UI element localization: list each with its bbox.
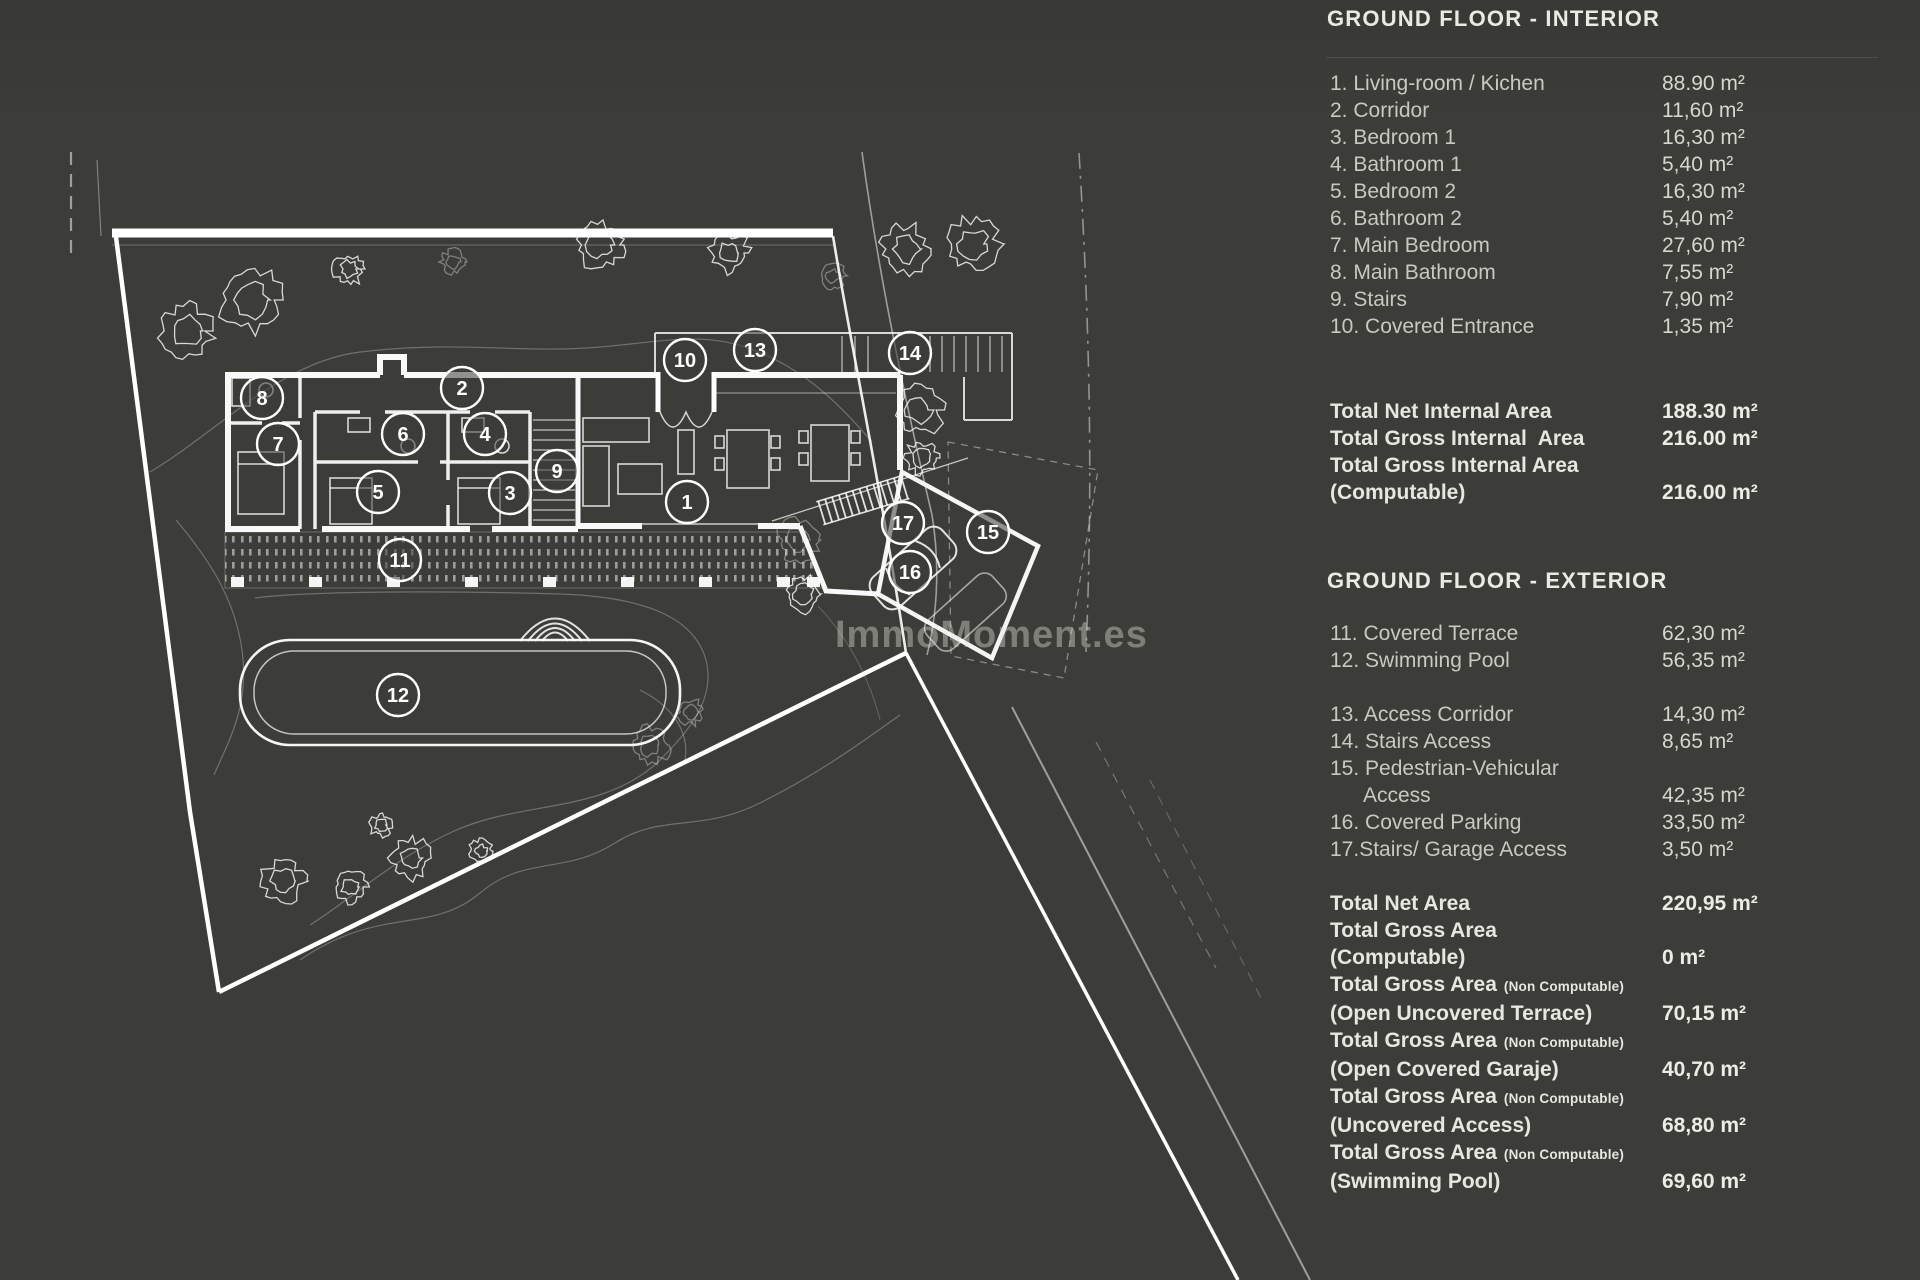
row-label: 6. Bathroom 2 [1330, 207, 1462, 230]
interior-items-list: 1. Living-room / Kichen88.90 m² 2. Corri… [1330, 70, 1916, 340]
row-label: Total Gross Area [1330, 919, 1497, 942]
row-label: Total Net Area [1330, 892, 1470, 915]
legend-row: 12. Swimming Pool56,35 m² [1330, 647, 1916, 674]
row-label-suffix: (Non Computable) [1497, 1147, 1624, 1162]
row-label: Total Gross Internal Area [1330, 427, 1584, 450]
legend-row: 8. Main Bathroom7,55 m² [1330, 259, 1916, 286]
furniture [232, 378, 860, 524]
legend-total-row: Total Gross Area(Non Computable) [1330, 971, 1916, 1000]
tree-icon [446, 256, 461, 270]
legend-total-row: Total Net Internal Area188.30 m² [1330, 398, 1916, 425]
row-value [1662, 1139, 1916, 1168]
terrace-post [621, 577, 634, 587]
row-label: 9. Stairs [1330, 288, 1407, 311]
tree-icon [219, 268, 284, 336]
legend-total-row: Total Gross Area [1330, 917, 1916, 944]
title-divider [1326, 57, 1878, 58]
svg-text:11: 11 [389, 550, 410, 572]
row-value: 7,90 m² [1662, 286, 1916, 313]
tree-icon [947, 216, 1004, 271]
room-marker: 12 [377, 674, 419, 716]
tree-icon [340, 260, 359, 279]
row-value: 40,70 m² [1662, 1056, 1916, 1083]
interior-section-title: GROUND FLOOR - INTERIOR [1327, 6, 1660, 32]
row-label: (Swimming Pool) [1330, 1170, 1500, 1193]
row-value [1662, 917, 1916, 944]
row-label: (Computable) [1330, 946, 1465, 969]
row-label-suffix: (Non Computable) [1497, 979, 1624, 994]
room-marker: 4 [464, 413, 506, 455]
svg-text:3: 3 [504, 483, 515, 505]
row-label: Total Net Internal Area [1330, 400, 1552, 423]
row-value [1662, 452, 1916, 479]
tree-icon [341, 880, 359, 895]
room-marker: 8 [241, 377, 283, 419]
legend-row: 14. Stairs Access8,65 m² [1330, 728, 1916, 755]
room-marker: 11 [379, 539, 421, 581]
row-label: (Open Uncovered Terrace) [1330, 1002, 1592, 1025]
svg-text:6: 6 [397, 424, 408, 446]
row-value: 220,95 m² [1662, 890, 1916, 917]
row-label: 14. Stairs Access [1330, 730, 1491, 753]
row-value: 188.30 m² [1662, 398, 1916, 425]
tree-icon [375, 819, 388, 831]
row-label: Access [1363, 784, 1431, 807]
legend-row: 10. Covered Entrance1,35 m² [1330, 313, 1916, 340]
row-value: 16,30 m² [1662, 124, 1916, 151]
legend-total-row: Total Gross Area(Non Computable) [1330, 1083, 1916, 1112]
row-label: Total Gross Area [1330, 1029, 1497, 1052]
row-label-suffix: (Non Computable) [1497, 1091, 1624, 1106]
row-value [1662, 1027, 1916, 1056]
room-marker: 15 [967, 511, 1009, 553]
tree-icon [369, 813, 393, 838]
svg-text:1: 1 [681, 492, 692, 514]
legend-total-row: Total Gross Internal Area216.00 m² [1330, 425, 1916, 452]
room-marker: 7 [257, 423, 299, 465]
tree-icon [439, 248, 467, 276]
tree-icon [175, 314, 203, 344]
terrace-post [807, 577, 820, 587]
legend-row: 15. Pedestrian-Vehicular [1330, 755, 1916, 782]
legend-total-row: (Open Uncovered Terrace)70,15 m² [1330, 1000, 1916, 1027]
room-marker: 13 [734, 329, 776, 371]
row-label: 15. Pedestrian-Vehicular [1330, 757, 1559, 780]
legend-total-row: (Open Covered Garaje)40,70 m² [1330, 1056, 1916, 1083]
room-marker: 1 [666, 481, 708, 523]
legend-total-row: (Swimming Pool)69,60 m² [1330, 1168, 1916, 1195]
row-label: Total Gross Area [1330, 1085, 1497, 1108]
row-label-suffix: (Non Computable) [1497, 1035, 1624, 1050]
svg-text:17: 17 [892, 513, 914, 535]
legend-row: Access42,35 m² [1330, 782, 1916, 809]
row-label: 17.Stairs/ Garage Access [1330, 838, 1567, 861]
legend-total-row: Total Gross Area(Non Computable) [1330, 1027, 1916, 1056]
row-value: 16,30 m² [1662, 178, 1916, 205]
legend-total-row: (Computable)0 m² [1330, 944, 1916, 971]
tree-icon [270, 869, 296, 893]
legend-row: 16. Covered Parking33,50 m² [1330, 809, 1916, 836]
tree-icon [158, 301, 216, 360]
svg-text:5: 5 [372, 482, 383, 504]
row-label: 8. Main Bathroom [1330, 261, 1496, 284]
legend-row: 6. Bathroom 25,40 m² [1330, 205, 1916, 232]
tree-icon [720, 243, 739, 261]
site-boundary [112, 233, 1310, 1280]
legend-row: 1. Living-room / Kichen88.90 m² [1330, 70, 1916, 97]
legend-row: 13. Access Corridor14,30 m² [1330, 701, 1916, 728]
row-value: 8,65 m² [1662, 728, 1916, 755]
exterior-section-title: GROUND FLOOR - EXTERIOR [1327, 568, 1668, 594]
row-label: Total Gross Area [1330, 973, 1497, 996]
terrace-post [699, 577, 712, 587]
tree-icon [474, 844, 487, 857]
row-label: (Uncovered Access) [1330, 1114, 1531, 1137]
legend-row: 9. Stairs7,90 m² [1330, 286, 1916, 313]
row-value: 0 m² [1662, 944, 1916, 971]
legend-total-row: Total Gross Area(Non Computable) [1330, 1139, 1916, 1168]
tree-icon [957, 231, 989, 261]
tree-icon [708, 235, 752, 275]
row-value: 88.90 m² [1662, 70, 1916, 97]
svg-text:4: 4 [479, 424, 491, 446]
room-marker: 14 [889, 332, 931, 374]
room-marker: 16 [889, 551, 931, 593]
exterior-totals-list: Total Net Area220,95 m² Total Gross Area… [1330, 890, 1916, 1195]
legend-row: 5. Bedroom 216,30 m² [1330, 178, 1916, 205]
interior-totals-list: Total Net Internal Area188.30 m² Total G… [1330, 398, 1916, 506]
row-label: 5. Bedroom 2 [1330, 180, 1456, 203]
tree-icon [879, 223, 932, 277]
pool-steps [520, 619, 590, 642]
row-label: 12. Swimming Pool [1330, 649, 1510, 672]
row-label: 2. Corridor [1330, 99, 1429, 122]
svg-text:13: 13 [744, 340, 766, 362]
row-value [1662, 674, 1916, 701]
room-marker: 6 [382, 413, 424, 455]
tree-icon [336, 871, 369, 905]
row-value: 11,60 m² [1662, 97, 1916, 124]
row-label: (Computable) [1330, 481, 1465, 504]
room-marker: 17 [882, 502, 924, 544]
svg-text:8: 8 [256, 388, 267, 410]
terrace-post [465, 577, 478, 587]
exterior-items-list: 11. Covered Terrace62,30 m² 12. Swimming… [1330, 620, 1916, 863]
row-value: 33,50 m² [1662, 809, 1916, 836]
tree-icon [387, 835, 431, 882]
tree-icon [683, 704, 698, 720]
tree-icon [234, 281, 271, 319]
row-label: 16. Covered Parking [1330, 811, 1521, 834]
row-label: 4. Bathroom 1 [1330, 153, 1462, 176]
svg-text:7: 7 [272, 434, 283, 456]
row-value: 70,15 m² [1662, 1000, 1916, 1027]
covered-terrace [225, 532, 824, 588]
room-marker: 3 [489, 472, 531, 514]
legend-row: 17.Stairs/ Garage Access3,50 m² [1330, 836, 1916, 863]
row-value: 56,35 m² [1662, 647, 1916, 674]
row-value: 69,60 m² [1662, 1168, 1916, 1195]
site-plan-page: { "watermark": { "text": "ImmoMoment.es"… [0, 0, 1920, 1280]
tree-icon [896, 383, 946, 434]
room-marker: 10 [664, 339, 706, 381]
row-label: Total Gross Area [1330, 1141, 1497, 1164]
svg-text:2: 2 [456, 378, 467, 400]
row-value: 14,30 m² [1662, 701, 1916, 728]
row-label: (Open Covered Garaje) [1330, 1058, 1559, 1081]
row-value [1662, 755, 1916, 782]
svg-text:9: 9 [551, 461, 562, 483]
row-label: 1. Living-room / Kichen [1330, 72, 1545, 95]
row-label: Total Gross Internal Area [1330, 454, 1579, 477]
legend-total-row: Total Net Area220,95 m² [1330, 890, 1916, 917]
svg-text:10: 10 [674, 350, 696, 372]
row-label: 10. Covered Entrance [1330, 315, 1534, 338]
row-label: 13. Access Corridor [1330, 703, 1513, 726]
terrace-post [231, 577, 244, 587]
tree-icon [913, 448, 931, 468]
row-value: 62,30 m² [1662, 620, 1916, 647]
legend-total-row: Total Gross Internal Area [1330, 452, 1916, 479]
terrace-post [543, 577, 556, 587]
row-value: 3,50 m² [1662, 836, 1916, 863]
row-value: 42,35 m² [1662, 782, 1916, 809]
watermark: ImmoMoment.es [835, 614, 1148, 657]
row-value: 5,40 m² [1662, 205, 1916, 232]
row-value: 68,80 m² [1662, 1112, 1916, 1139]
legend-row: 7. Main Bedroom27,60 m² [1330, 232, 1916, 259]
room-marker: 2 [441, 367, 483, 409]
svg-text:16: 16 [899, 562, 921, 584]
row-value: 216.00 m² [1662, 425, 1916, 452]
legend-row: 3. Bedroom 116,30 m² [1330, 124, 1916, 151]
row-value [1662, 971, 1916, 1000]
row-label: 11. Covered Terrace [1330, 622, 1518, 645]
row-value: 5,40 m² [1662, 151, 1916, 178]
swimming-pool [240, 619, 680, 746]
legend-row: 11. Covered Terrace62,30 m² [1330, 620, 1916, 647]
svg-text:14: 14 [899, 343, 922, 365]
row-label: 7. Main Bedroom [1330, 234, 1490, 257]
room-marker: 5 [357, 471, 399, 513]
tree-icon [892, 235, 921, 265]
terrace-post [309, 577, 322, 587]
legend-total-row: (Computable)216.00 m² [1330, 479, 1916, 506]
legend-total-row: (Uncovered Access)68,80 m² [1330, 1112, 1916, 1139]
legend-row [1330, 674, 1916, 701]
room-marker: 9 [536, 450, 578, 492]
row-value: 27,60 m² [1662, 232, 1916, 259]
legend-row: 2. Corridor11,60 m² [1330, 97, 1916, 124]
row-value: 1,35 m² [1662, 313, 1916, 340]
row-value: 7,55 m² [1662, 259, 1916, 286]
row-label: 3. Bedroom 1 [1330, 126, 1456, 149]
svg-text:15: 15 [977, 522, 999, 544]
row-value: 216.00 m² [1662, 479, 1916, 506]
svg-text:12: 12 [387, 685, 409, 707]
legend-row: 4. Bathroom 15,40 m² [1330, 151, 1916, 178]
tree-icon [260, 860, 309, 904]
row-value [1662, 1083, 1916, 1112]
terrace-post [777, 577, 790, 587]
